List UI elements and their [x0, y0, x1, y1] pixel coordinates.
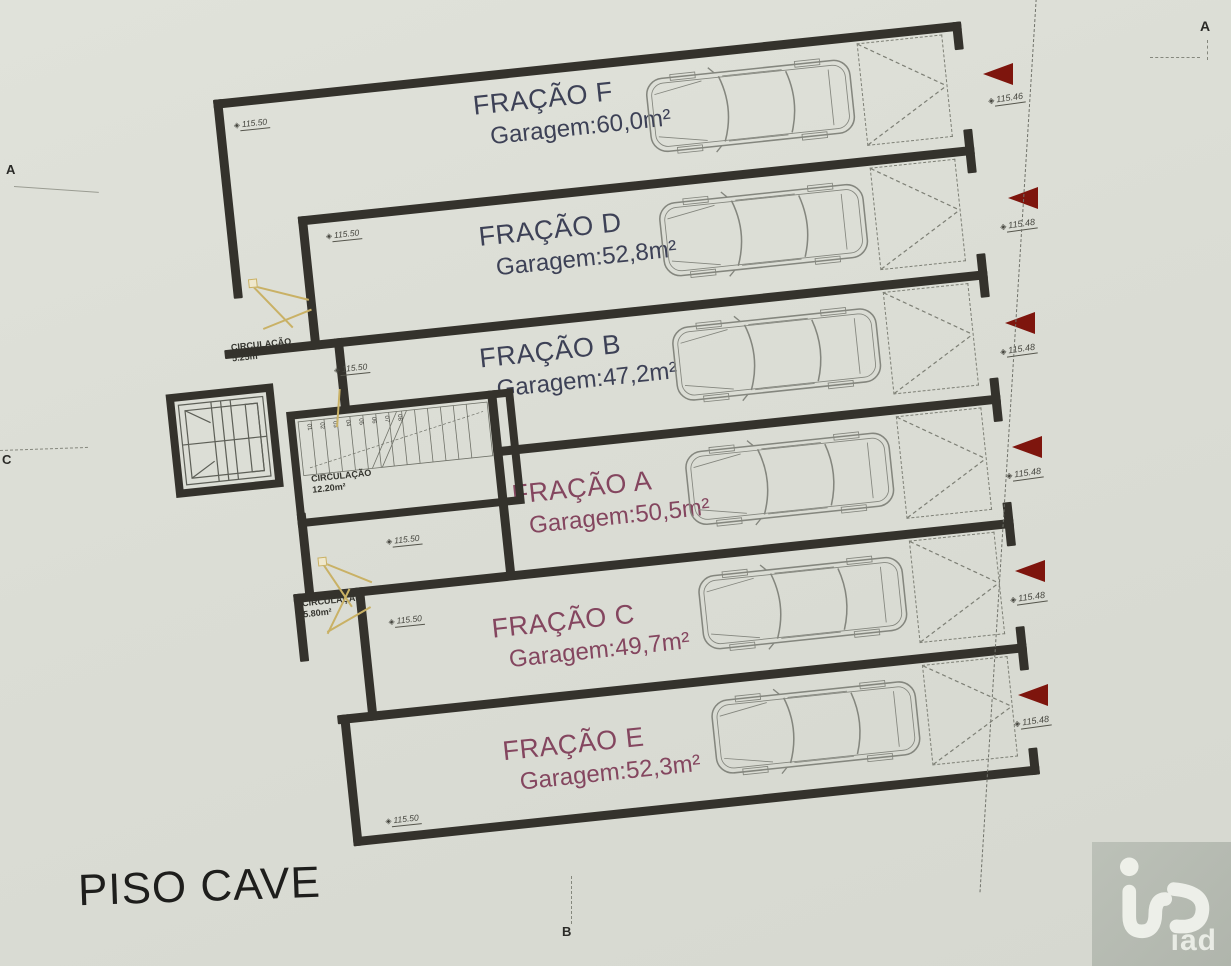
- door-swing-icon: [910, 533, 1004, 642]
- elevation-benchmark: ◈115.48: [999, 341, 1037, 356]
- car-topview-icon: [705, 669, 926, 787]
- entrance-arrow-icon: [1015, 560, 1045, 582]
- elevation-benchmark: ◈115.50: [386, 533, 422, 547]
- step-number: 08: [396, 414, 403, 422]
- car-topview-icon: [666, 296, 887, 414]
- step-number: 06: [370, 417, 377, 425]
- door-hinge: [317, 557, 327, 567]
- step-number: 02: [318, 422, 325, 430]
- garage-door-swing: [896, 407, 992, 518]
- elevator-icon: [174, 392, 275, 489]
- door-swing-icon: [884, 284, 978, 393]
- grid-marker-a-left: A: [6, 162, 15, 177]
- elevation-value: 115.48: [1006, 341, 1038, 357]
- door-swing-icon: [897, 408, 991, 517]
- wall-segment: [952, 21, 964, 50]
- elevation-value: 115.46: [994, 90, 1026, 106]
- iad-logo: iad: [1092, 842, 1231, 966]
- stairwell: 01 02 03 04 05 06 07 08: [286, 388, 525, 527]
- iad-logo-text: iad: [1171, 924, 1217, 958]
- elevator-shaft: [166, 383, 284, 498]
- elevation-value: 115.48: [1012, 465, 1044, 481]
- plan-title: PISO CAVE: [77, 858, 322, 916]
- grid-marker-line: [571, 876, 572, 924]
- entrance-arrow-icon: [1012, 436, 1042, 458]
- basement-plan: FRAÇÃO F Garagem:60,0m² FRAÇÃO D Garagem…: [213, 21, 1040, 855]
- step-number: 01: [305, 423, 312, 431]
- step-number: 07: [383, 415, 390, 423]
- grid-marker-line: [0, 447, 88, 451]
- elevation-value: 115.50: [392, 533, 422, 548]
- garage-door-swing: [870, 159, 966, 270]
- door-swing-icon: [871, 160, 965, 269]
- wall-segment: [1028, 747, 1040, 775]
- door-swing-icon: [858, 36, 952, 145]
- entrance-arrow-icon: [1018, 684, 1048, 706]
- elevation-benchmark: ◈115.50: [233, 116, 269, 130]
- garage-door-swing: [922, 656, 1018, 765]
- grid-marker-a-top-right: A: [1200, 18, 1210, 34]
- circulation-area: 5.25m²: [232, 350, 261, 363]
- entrance-arrow-icon: [1005, 312, 1035, 334]
- stairs-icon: 01 02 03 04 05 06 07 08: [297, 401, 494, 477]
- entrance-arrow-icon: [983, 63, 1013, 85]
- garage-door-swing: [909, 532, 1005, 643]
- step-number: 05: [357, 418, 364, 426]
- elevation-benchmark: ◈115.50: [388, 613, 424, 627]
- grid-marker-line: [1150, 57, 1200, 58]
- elevation-benchmark: ◈115.50: [385, 812, 421, 826]
- elevation-benchmark: ◈115.46: [987, 90, 1025, 105]
- grid-marker-line: [14, 186, 99, 193]
- elevation-benchmark: ◈115.50: [325, 227, 361, 241]
- elevation-benchmark: ◈115.50: [333, 361, 369, 375]
- door-swing-icon: [923, 657, 1017, 764]
- car-topview-icon: [692, 544, 913, 662]
- car-topview-icon: [653, 171, 874, 289]
- step-number: 04: [344, 419, 351, 427]
- floor-plan-photo: FRAÇÃO F Garagem:60,0m² FRAÇÃO D Garagem…: [0, 0, 1231, 966]
- circulation-name: CIRCULAÇÃO: [230, 336, 291, 352]
- grid-marker-line: [1207, 40, 1208, 60]
- grid-marker-b-bottom: B: [562, 924, 571, 939]
- door-swing-line: [263, 309, 312, 330]
- grid-marker-c-left: C: [2, 452, 11, 467]
- garage-door-swing: [883, 283, 979, 394]
- car-topview-icon: [640, 47, 861, 165]
- circulation-label: CIRCULAÇÃO 5.25m²: [230, 336, 292, 364]
- elevation-benchmark: ◈115.48: [999, 216, 1037, 231]
- garage-door-swing: [857, 34, 953, 145]
- car-topview-icon: [679, 420, 900, 538]
- elevation-benchmark: ◈115.48: [1005, 465, 1043, 480]
- door-hinge: [248, 278, 258, 288]
- circulation-area: 5.80m²: [303, 606, 332, 619]
